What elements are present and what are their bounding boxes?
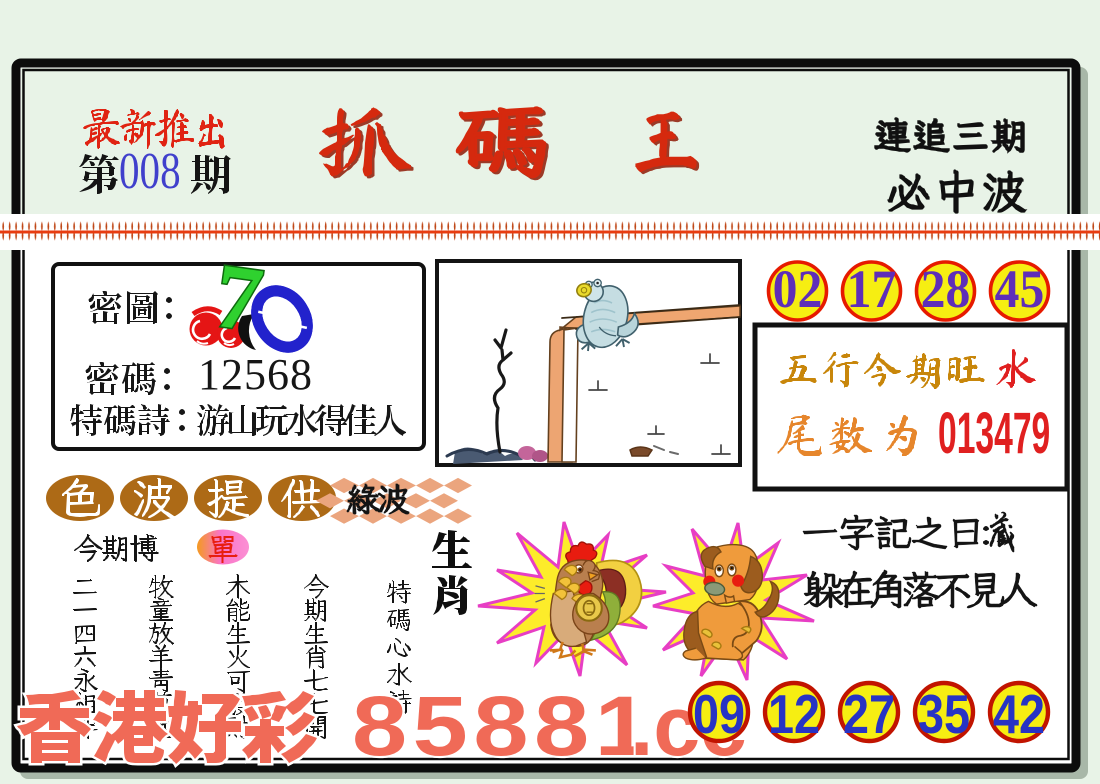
svg-text:17: 17: [847, 260, 897, 319]
svg-text:12: 12: [768, 683, 820, 744]
svg-text:27: 27: [843, 683, 895, 744]
svg-text:008: 008: [119, 143, 181, 201]
svg-text:02: 02: [773, 260, 823, 319]
svg-text:09: 09: [693, 683, 745, 744]
svg-text:42: 42: [993, 683, 1045, 744]
svg-text:013479: 013479: [938, 402, 1050, 467]
svg-text:35: 35: [918, 683, 970, 744]
svg-text:45: 45: [995, 260, 1045, 319]
svg-text:85881: 85881: [352, 680, 655, 773]
svg-text:12568: 12568: [198, 350, 313, 399]
svg-text:28: 28: [921, 260, 971, 319]
